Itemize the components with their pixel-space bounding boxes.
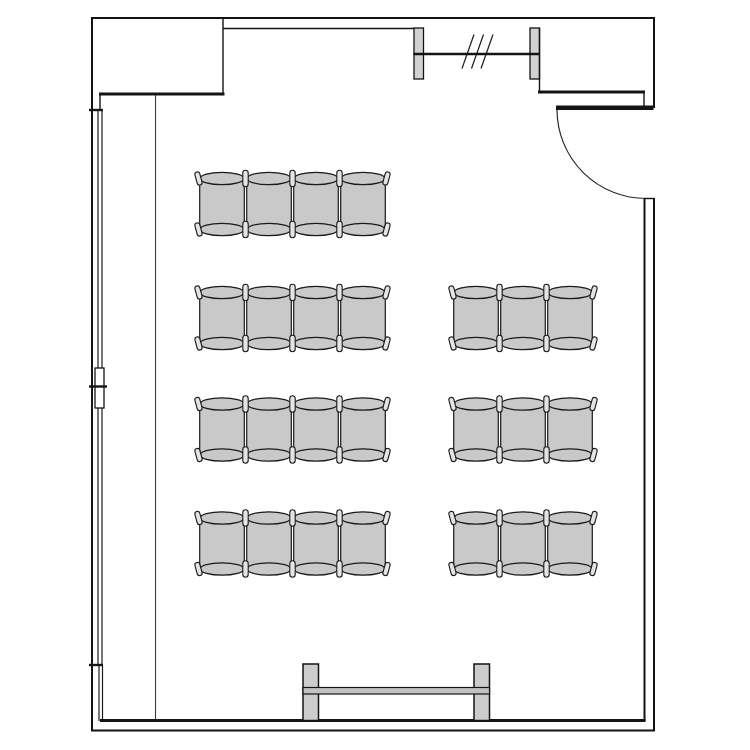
chair-armrest-pill bbox=[290, 561, 295, 578]
floor-plan-drawing bbox=[0, 0, 750, 750]
chair-armrest-pill bbox=[337, 221, 342, 238]
chair-front-curve bbox=[247, 449, 291, 461]
chair-front-curve bbox=[247, 563, 291, 575]
chair-front-curve bbox=[501, 337, 545, 349]
chair bbox=[247, 512, 292, 575]
chair bbox=[247, 172, 292, 235]
chair bbox=[294, 172, 339, 235]
chair bbox=[200, 286, 245, 349]
door bbox=[556, 106, 655, 199]
chair-backrest-curve bbox=[548, 512, 592, 524]
chair-armrest-pill bbox=[290, 510, 295, 527]
chair-armrest-pill bbox=[448, 511, 456, 525]
chair-armrest-pill bbox=[290, 396, 295, 413]
chair-row-right-row-1 bbox=[448, 284, 597, 352]
chair-front-curve bbox=[501, 563, 545, 575]
chair-front-curve bbox=[501, 449, 545, 461]
chair-armrest-pill bbox=[243, 284, 248, 301]
chair-front-curve bbox=[294, 449, 338, 461]
chair-armrest-pill bbox=[337, 510, 342, 527]
chair-armrest-pill bbox=[544, 510, 549, 527]
chair-backrest-curve bbox=[548, 398, 592, 410]
top-wall-window bbox=[223, 28, 540, 79]
chair-armrest-pill bbox=[194, 285, 202, 299]
chair-row-left-row-4 bbox=[194, 510, 390, 578]
chairs-layer bbox=[194, 170, 597, 577]
door-leaf bbox=[556, 106, 654, 111]
chair-armrest-pill bbox=[544, 561, 549, 578]
chair-armrest-pill bbox=[243, 396, 248, 413]
chair-armrest-pill bbox=[448, 397, 456, 411]
chair-backrest-curve bbox=[200, 398, 244, 410]
chair-front-curve bbox=[454, 449, 498, 461]
chair bbox=[294, 286, 339, 349]
floor-plan-page bbox=[0, 0, 750, 750]
chair-armrest-pill bbox=[382, 511, 390, 525]
chair-armrest-pill bbox=[382, 397, 390, 411]
chair-front-curve bbox=[247, 223, 291, 235]
chair-front-curve bbox=[200, 449, 244, 461]
chair-armrest-pill bbox=[382, 285, 390, 299]
chair-front-curve bbox=[341, 337, 385, 349]
door-swing-arc bbox=[557, 110, 646, 199]
chair-armrest-pill bbox=[382, 171, 390, 185]
chair-armrest-pill bbox=[243, 510, 248, 527]
chair bbox=[341, 172, 386, 235]
chair-backrest-curve bbox=[200, 286, 244, 298]
chair-front-curve bbox=[294, 563, 338, 575]
chair-backrest-curve bbox=[501, 512, 545, 524]
chair-front-curve bbox=[548, 337, 592, 349]
glass-slash-3 bbox=[481, 35, 493, 69]
chair-front-curve bbox=[200, 337, 244, 349]
chair-backrest-curve bbox=[294, 398, 338, 410]
chair bbox=[294, 512, 339, 575]
chair bbox=[200, 512, 245, 575]
chair-armrest-pill bbox=[497, 510, 502, 527]
chair-front-curve bbox=[200, 563, 244, 575]
chair bbox=[548, 286, 593, 349]
chair-armrest-pill bbox=[194, 511, 202, 525]
chair-backrest-curve bbox=[247, 172, 291, 184]
presentation-board bbox=[303, 664, 490, 721]
chair-backrest-curve bbox=[501, 398, 545, 410]
chair-armrest-pill bbox=[589, 285, 597, 299]
chair bbox=[454, 512, 499, 575]
chair-armrest-pill bbox=[448, 285, 456, 299]
chair-armrest-pill bbox=[337, 396, 342, 413]
chair-armrest-pill bbox=[544, 396, 549, 413]
chair-armrest-pill bbox=[544, 284, 549, 301]
chair bbox=[247, 398, 292, 461]
chair-armrest-pill bbox=[544, 447, 549, 464]
chair-backrest-curve bbox=[200, 512, 244, 524]
chair-row-right-row-2 bbox=[448, 396, 597, 464]
chair bbox=[294, 398, 339, 461]
chair bbox=[341, 286, 386, 349]
chair-backrest-curve bbox=[294, 172, 338, 184]
chair-armrest-pill bbox=[243, 335, 248, 352]
chair-backrest-curve bbox=[247, 286, 291, 298]
glass-slash-marks bbox=[462, 35, 493, 69]
chair-front-curve bbox=[294, 337, 338, 349]
chair-front-curve bbox=[548, 563, 592, 575]
chair-armrest-pill bbox=[290, 221, 295, 238]
glass-slash-1 bbox=[462, 35, 474, 69]
chair-backrest-curve bbox=[454, 398, 498, 410]
chair bbox=[548, 398, 593, 461]
chair-armrest-pill bbox=[337, 447, 342, 464]
chair-armrest-pill bbox=[243, 170, 248, 187]
chair bbox=[501, 286, 546, 349]
chair-backrest-curve bbox=[200, 172, 244, 184]
outer-walls bbox=[91, 17, 655, 731]
chair bbox=[200, 398, 245, 461]
chair-armrest-pill bbox=[337, 561, 342, 578]
board-rail bbox=[303, 688, 490, 695]
chair-backrest-curve bbox=[294, 286, 338, 298]
chair-armrest-pill bbox=[290, 447, 295, 464]
chair-front-curve bbox=[341, 449, 385, 461]
chair-armrest-pill bbox=[243, 447, 248, 464]
left-window-mullion bbox=[95, 368, 104, 408]
chair-front-curve bbox=[200, 223, 244, 235]
chair bbox=[341, 512, 386, 575]
chair-row-left-row-1 bbox=[194, 170, 390, 238]
chair bbox=[200, 172, 245, 235]
chair bbox=[454, 286, 499, 349]
chair-front-curve bbox=[294, 223, 338, 235]
chair-backrest-curve bbox=[454, 512, 498, 524]
chair-backrest-curve bbox=[341, 398, 385, 410]
chair-front-curve bbox=[341, 223, 385, 235]
chair-armrest-pill bbox=[497, 447, 502, 464]
chair-front-curve bbox=[247, 337, 291, 349]
chair-backrest-curve bbox=[341, 512, 385, 524]
chair-armrest-pill bbox=[337, 284, 342, 301]
chair-front-curve bbox=[454, 563, 498, 575]
chair-backrest-curve bbox=[294, 512, 338, 524]
chair-row-right-row-3 bbox=[448, 510, 597, 578]
chair bbox=[341, 398, 386, 461]
chair-row-left-row-2 bbox=[194, 284, 390, 352]
chair-backrest-curve bbox=[501, 286, 545, 298]
chair-backrest-curve bbox=[341, 172, 385, 184]
chair-armrest-pill bbox=[243, 221, 248, 238]
chair bbox=[247, 286, 292, 349]
chair-armrest-pill bbox=[243, 561, 248, 578]
chair-armrest-pill bbox=[497, 335, 502, 352]
chair-backrest-curve bbox=[548, 286, 592, 298]
chair-armrest-pill bbox=[337, 170, 342, 187]
chair-armrest-pill bbox=[589, 511, 597, 525]
chair-armrest-pill bbox=[290, 284, 295, 301]
chair-front-curve bbox=[454, 337, 498, 349]
chair-front-curve bbox=[548, 449, 592, 461]
top-left-wall-block bbox=[89, 18, 225, 110]
chair-backrest-curve bbox=[247, 398, 291, 410]
chair-front-curve bbox=[341, 563, 385, 575]
chair-backrest-curve bbox=[454, 286, 498, 298]
chair-armrest-pill bbox=[497, 396, 502, 413]
chair-armrest-pill bbox=[290, 335, 295, 352]
chair-armrest-pill bbox=[337, 335, 342, 352]
chair bbox=[501, 512, 546, 575]
chair bbox=[454, 398, 499, 461]
chair-row-left-row-3 bbox=[194, 396, 390, 464]
chair-armrest-pill bbox=[589, 397, 597, 411]
chair-backrest-curve bbox=[247, 512, 291, 524]
glass-slash-2 bbox=[472, 35, 484, 69]
chair-armrest-pill bbox=[497, 284, 502, 301]
chair-armrest-pill bbox=[290, 170, 295, 187]
chair-armrest-pill bbox=[544, 335, 549, 352]
chair bbox=[501, 398, 546, 461]
chair bbox=[548, 512, 593, 575]
chair-backrest-curve bbox=[341, 286, 385, 298]
chair-armrest-pill bbox=[194, 171, 202, 185]
top-right-wall-block bbox=[538, 28, 645, 107]
chair-armrest-pill bbox=[497, 561, 502, 578]
chair-armrest-pill bbox=[194, 397, 202, 411]
